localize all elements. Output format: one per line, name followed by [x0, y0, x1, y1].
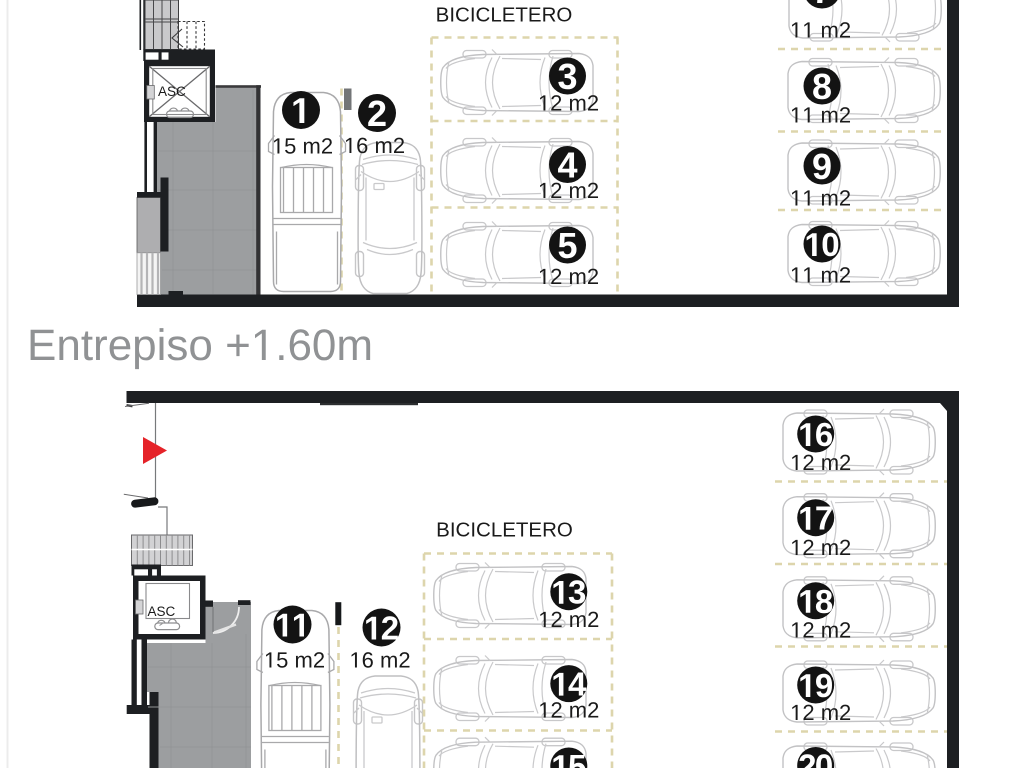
svg-text:BICICLETERO: BICICLETERO — [436, 519, 573, 542]
svg-text:2 m2: 2 m2 — [550, 264, 599, 289]
svg-text:2 m2: 2 m2 — [550, 91, 599, 116]
svg-text:5 m2: 5 m2 — [276, 648, 325, 673]
svg-text:5: 5 — [557, 225, 577, 266]
svg-text:0: 0 — [815, 748, 833, 768]
svg-text:m2: m2 — [821, 103, 852, 128]
svg-text:9: 9 — [815, 667, 833, 704]
svg-text:3: 3 — [568, 574, 586, 611]
svg-text:m2: m2 — [821, 18, 852, 43]
svg-text:2 m2: 2 m2 — [550, 698, 599, 723]
svg-text:ASC: ASC — [158, 84, 186, 99]
svg-text:2 m2: 2 m2 — [802, 535, 851, 560]
svg-text:2 m2: 2 m2 — [802, 450, 851, 475]
svg-text:ASC: ASC — [148, 604, 176, 619]
svg-text:2 m2: 2 m2 — [550, 178, 599, 203]
svg-text:0: 0 — [821, 226, 839, 263]
svg-text:9: 9 — [812, 146, 832, 187]
svg-text:.60m: .60m — [275, 321, 373, 370]
svg-text:Entrepiso +: Entrepiso + — [27, 321, 251, 370]
svg-text:6 m2: 6 m2 — [362, 648, 411, 673]
svg-text:2: 2 — [367, 93, 387, 134]
svg-text:BICICLETERO: BICICLETERO — [436, 4, 573, 27]
svg-text:m2: m2 — [821, 263, 852, 288]
svg-text:m2: m2 — [821, 186, 852, 211]
svg-text:7: 7 — [815, 500, 833, 537]
svg-text:2: 2 — [381, 610, 399, 647]
svg-text:7: 7 — [812, 0, 832, 11]
svg-text:2 m2: 2 m2 — [802, 700, 851, 725]
svg-text:8: 8 — [815, 583, 833, 620]
svg-text:2 m2: 2 m2 — [550, 607, 599, 632]
svg-text:6: 6 — [815, 416, 833, 453]
svg-text:5 m2: 5 m2 — [284, 134, 333, 159]
svg-text:5: 5 — [568, 748, 586, 768]
svg-text:2: 2 — [798, 748, 816, 768]
svg-text:6 m2: 6 m2 — [356, 133, 405, 158]
svg-text:2 m2: 2 m2 — [802, 618, 851, 643]
svg-text:8: 8 — [812, 66, 832, 107]
